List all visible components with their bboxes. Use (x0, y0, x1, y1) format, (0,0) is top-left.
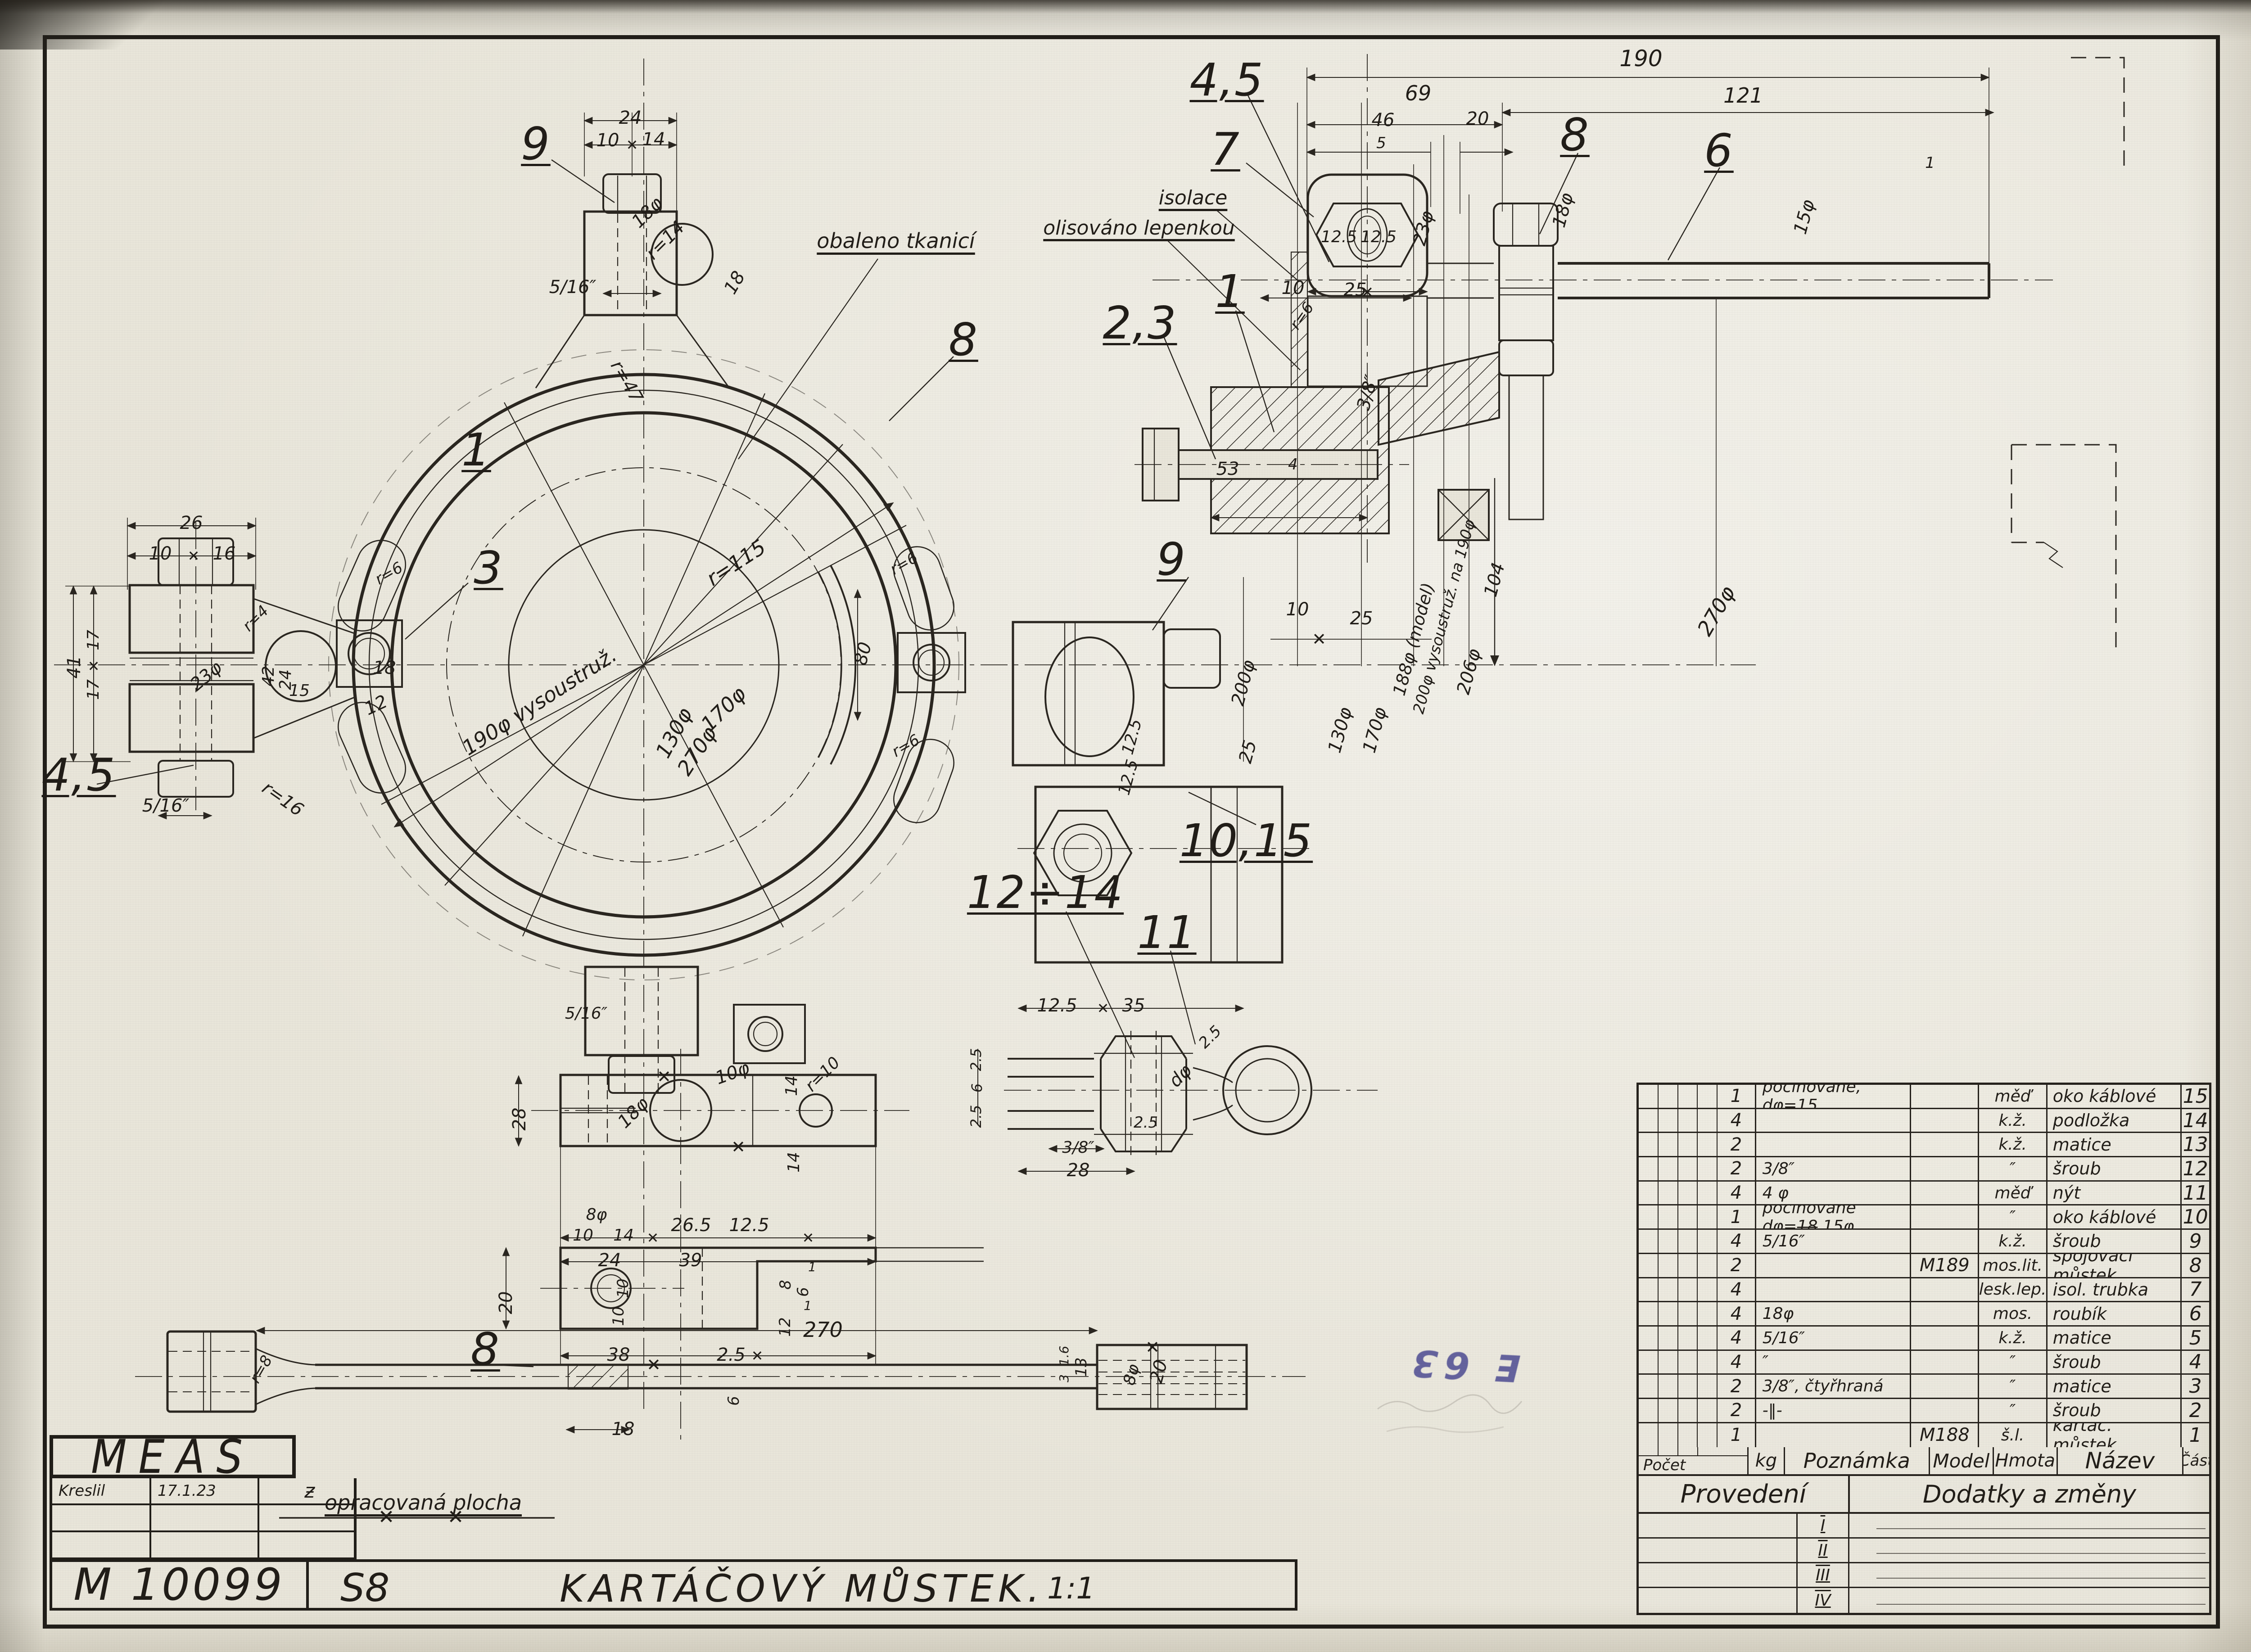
header-roman (1678, 1447, 1698, 1455)
cell-count-iv (1639, 1375, 1659, 1398)
cell-part-number: 6 (2182, 1302, 2209, 1325)
annotation: 1 (1215, 269, 1245, 314)
annotation: ✕ (1097, 1001, 1109, 1016)
cell-material: k.ž. (1979, 1133, 2047, 1156)
cell-model (1911, 1399, 1979, 1422)
cell-count-iv (1639, 1157, 1659, 1180)
cell-name: podložka (2048, 1109, 2182, 1132)
cell-note: ″ (1756, 1351, 1911, 1374)
annotation: r=8 (247, 1353, 275, 1386)
cell-count-iv (1639, 1351, 1659, 1374)
signature-table: Kreslil 17.1.23 ƶ (50, 1478, 357, 1559)
cell-note: 5/16″ (1756, 1230, 1911, 1253)
cell-note (1756, 1109, 1911, 1132)
cell-part-number: 14 (2182, 1109, 2209, 1132)
cell-model (1911, 1230, 1979, 1253)
ink-stamp: E 63 (1399, 1341, 1528, 1390)
annotation: 8 (949, 317, 978, 362)
title-row: M 10099 S8 KARTÁČOVÝ MŮSTEK. 1:1 (50, 1559, 1297, 1611)
annotation: 20 (497, 1291, 515, 1314)
annotation: 17 (86, 679, 102, 700)
parts-table-row: 4 4 φ měď nýt 11 (1639, 1182, 2209, 1206)
annotation: 4,5 (1189, 58, 1264, 103)
cell-count-ii (1678, 1327, 1698, 1350)
annotation: ✕ (1312, 631, 1326, 648)
cell-name: oko káblové (2048, 1085, 2182, 1108)
annotation: 12.5 (1321, 229, 1357, 245)
annotation: 18 (612, 1420, 635, 1438)
cell-count-i (1698, 1157, 1718, 1180)
cell-count: 4 (1718, 1230, 1756, 1253)
cell-count: 4 (1718, 1302, 1756, 1325)
annotation: 14 (784, 1075, 800, 1096)
header-poznamka: Poznámka (1785, 1447, 1930, 1474)
annotation: 7 (1211, 127, 1240, 172)
cell-count-iii (1659, 1278, 1678, 1301)
cell-part-number: 8 (2182, 1254, 2209, 1277)
annotation: 14 (642, 131, 665, 149)
cell-material: ″ (1979, 1205, 2047, 1228)
annotation: ✕ (657, 1068, 671, 1085)
drawn-label: Kreslil (52, 1478, 151, 1503)
cell-model: M188 (1911, 1423, 1979, 1448)
annotation: 6 (1704, 128, 1734, 173)
annotation: r=115 (703, 536, 769, 589)
cell-part-number: 3 (2182, 1375, 2209, 1398)
cell-count-i (1698, 1278, 1718, 1301)
annotation: 28 (1067, 1161, 1090, 1179)
revision-numeral: III (1796, 1563, 1849, 1587)
cell-model (1911, 1278, 1979, 1301)
cell-count-iii (1659, 1182, 1678, 1205)
annotation: 24 (619, 109, 642, 127)
cell-model (1911, 1205, 1979, 1228)
cell-note: 4 φ (1756, 1182, 1911, 1205)
annotation: obaleno tkanicí (817, 230, 975, 251)
header-cast: Část (2183, 1447, 2209, 1474)
cell-count-i (1698, 1085, 1718, 1108)
annotation: 6 (726, 1396, 741, 1406)
annotation: 23φ (187, 658, 226, 694)
annotation: 190 (1619, 47, 1662, 70)
annotation: 28 (511, 1108, 529, 1131)
annotation: 35 (1122, 997, 1145, 1015)
drawn-date: 17.1.23 (151, 1478, 259, 1503)
cell-material: lesk.lep. (1979, 1278, 2047, 1301)
cell-count-ii (1678, 1375, 1698, 1398)
annotation: 10 (597, 131, 619, 149)
header-hmota: Hmota (1994, 1447, 2058, 1474)
cell-count: 4 (1718, 1327, 1756, 1350)
revision-line (1876, 1588, 2206, 1605)
cell-part-number: 7 (2182, 1278, 2209, 1301)
annotation: 5/16″ (142, 797, 190, 815)
cell-count-iv (1639, 1205, 1659, 1228)
cell-count-iv (1639, 1182, 1659, 1205)
cell-count: 4 (1718, 1278, 1756, 1301)
annotation: 12.5 (729, 1216, 769, 1234)
cell-note: 5/16″ (1756, 1327, 1911, 1350)
annotation: 8φ (1121, 1363, 1143, 1387)
revision-empty-cell (1639, 1563, 1796, 1587)
annotation: ✕ (1145, 1339, 1160, 1356)
cell-count-iii (1659, 1109, 1678, 1132)
parts-table-row: 2 M189 mos.lit. spojovací můstek 8 (1639, 1254, 2209, 1278)
annotation: 12 (362, 692, 390, 718)
annotation: 46 (1372, 111, 1395, 129)
annotation: 39 (679, 1251, 702, 1269)
annotation: ✕ (188, 549, 200, 563)
cell-name: roubík (2048, 1302, 2182, 1325)
annotation: 206φ (1454, 647, 1483, 696)
cell-model: M189 (1911, 1254, 1979, 1277)
annotation: 5/16″ (565, 1006, 607, 1022)
annotation: 25 (1236, 738, 1260, 765)
annotation: r=4 (240, 603, 271, 634)
cell-count-i (1698, 1205, 1718, 1228)
cell-model (1911, 1302, 1979, 1325)
cell-count-iii (1659, 1399, 1678, 1422)
empty-cell (259, 1532, 354, 1557)
revision-line (1876, 1539, 2206, 1554)
cell-count-i (1698, 1423, 1718, 1448)
cell-count-i (1698, 1399, 1718, 1422)
annotation: 10 (1282, 279, 1305, 297)
cell-count-iii (1659, 1133, 1678, 1156)
drawing-scale: 1:1 (1047, 1571, 1095, 1606)
cell-material: měď (1979, 1085, 2047, 1108)
cell-name: matice (2048, 1133, 2182, 1156)
cell-part-number: 5 (2182, 1327, 2209, 1350)
parts-table-row: 1 pocínované, dφ=15 měď oko káblové 15 (1639, 1085, 2209, 1109)
cell-name: isol. trubka (2048, 1278, 2182, 1301)
cell-material: měď (1979, 1182, 2047, 1205)
annotation: 270φ (1694, 582, 1739, 639)
revision-line (1876, 1514, 2206, 1529)
annotation: 12.5 (1037, 997, 1077, 1015)
annotation: dφ (1166, 1061, 1195, 1091)
cell-material: š.l. (1979, 1423, 2047, 1448)
annotation: 20 (1466, 110, 1489, 128)
cell-name: matice (2048, 1327, 2182, 1350)
annotation: ✕ (646, 1356, 661, 1373)
revision-numeral: IV (1796, 1588, 1849, 1613)
cell-count-ii (1678, 1399, 1698, 1422)
annotation: 6 (970, 1083, 984, 1092)
cell-part-number: 1 (2182, 1423, 2209, 1448)
annotation: 3 (474, 546, 503, 591)
cell-name: matice (2048, 1375, 2182, 1398)
annotation: ✕ (447, 1508, 464, 1527)
cell-count-iii (1659, 1230, 1678, 1253)
cell-note: 3/8″, čtyřhraná (1756, 1375, 1911, 1398)
revision-empty-cell (1639, 1514, 1796, 1537)
empty-cell (52, 1505, 151, 1530)
cell-material: k.ž. (1979, 1109, 2047, 1132)
cell-count-i (1698, 1109, 1718, 1132)
annotation: 3 (1058, 1374, 1071, 1382)
annotation: 2.5 (717, 1346, 746, 1364)
annotation: 12.5 (1361, 229, 1397, 245)
cell-count: 1 (1718, 1205, 1756, 1228)
cell-count-iv (1639, 1109, 1659, 1132)
annotation: 1 (1925, 155, 1935, 171)
annotation: ✕ (378, 1508, 395, 1527)
annotation: 41 (65, 656, 83, 679)
cell-count-iv (1639, 1327, 1659, 1350)
annotation: ✕ (802, 1231, 814, 1245)
cell-count-iii (1659, 1302, 1678, 1325)
revision-row: II (1639, 1539, 2209, 1563)
company-logo-box: MEAS (50, 1435, 296, 1478)
annotation: isolace (1159, 188, 1228, 208)
cell-count-i (1698, 1182, 1718, 1205)
annotation: 18φ (1550, 191, 1577, 229)
annotation: 10 (149, 545, 172, 563)
annotation: 13 (1074, 1357, 1089, 1377)
revision-empty-cell (1639, 1539, 1796, 1562)
annotation: ✕ (731, 1138, 746, 1155)
cell-count-ii (1678, 1278, 1698, 1301)
cell-name: oko káblové (2048, 1205, 2182, 1228)
annotation: 9 (1157, 537, 1186, 582)
cell-count-iv (1639, 1423, 1659, 1448)
sheet-code: S8 (340, 1566, 389, 1611)
parts-table-row: 4 lesk.lep. isol. trubka 7 (1639, 1278, 2209, 1303)
cell-note (1756, 1254, 1911, 1277)
cell-count-ii (1678, 1205, 1698, 1228)
annotation: 1 (461, 428, 491, 473)
cell-count-iii (1659, 1351, 1678, 1374)
parts-table-row: 4 5/16″ k.ž. šroub 9 (1639, 1230, 2209, 1254)
cell-note (1756, 1423, 1911, 1448)
annotation: 42 (261, 666, 277, 686)
empty-cell (151, 1532, 259, 1557)
cell-name: šroub (2048, 1399, 2182, 1422)
cell-note: pocínované dφ=1̶8̶ 15φ (1756, 1205, 1911, 1228)
annotation: 9 (521, 122, 551, 167)
annotation: 14 (786, 1152, 802, 1173)
cell-note: 3/8″ (1756, 1157, 1911, 1180)
parts-table-row: 4 ″ ″ šroub 4 (1639, 1351, 2209, 1375)
annotation: 26 (180, 514, 203, 532)
cell-model (1911, 1085, 1979, 1108)
revision-row: III (1639, 1563, 2209, 1588)
cell-model (1911, 1157, 1979, 1180)
annotation: 2.5 (1134, 1115, 1158, 1130)
annotation: 15φ (1791, 198, 1818, 236)
drawn-signature: ƶ (259, 1478, 354, 1503)
cell-count-iv (1639, 1302, 1659, 1325)
annotation: 10 (573, 1228, 593, 1244)
parts-table-row: 2 k.ž. matice 13 (1639, 1133, 2209, 1157)
annotation: r=6 (1288, 300, 1317, 332)
annotation: 12÷14 (967, 870, 1124, 915)
cell-name: šroub (2048, 1230, 2182, 1253)
annotation: 8 (778, 1280, 793, 1290)
cell-model (1911, 1133, 1979, 1156)
annotation: olisováno lepenkou (1043, 218, 1234, 238)
parts-table-row: 4 k.ž. podložka 14 (1639, 1109, 2209, 1133)
cell-count-i (1698, 1133, 1718, 1156)
revision-numeral: I (1796, 1514, 1849, 1537)
annotation: 5 (1376, 135, 1386, 151)
annotation: 18φ (615, 1094, 652, 1132)
annotation: 38 (607, 1346, 630, 1364)
cell-count-i (1698, 1254, 1718, 1277)
cell-count-ii (1678, 1254, 1698, 1277)
header-pocet: Počet (1639, 1456, 1747, 1474)
cell-count-ii (1678, 1423, 1698, 1448)
annotation: r=10 (803, 1054, 843, 1095)
annotation: 25 (1350, 609, 1373, 627)
cell-material: ″ (1979, 1157, 2047, 1180)
cell-count-iii (1659, 1375, 1678, 1398)
annotation: r=6 (890, 732, 922, 759)
cell-count-i (1698, 1327, 1718, 1350)
cell-count-iii (1659, 1327, 1678, 1350)
parts-table: 1 pocínované, dφ=15 měď oko káblové 15 4… (1636, 1083, 2211, 1615)
cell-count-iv (1639, 1133, 1659, 1156)
parts-table-row: 1 pocínované dφ=1̶8̶ 15φ ″ oko káblové 1… (1639, 1205, 2209, 1230)
empty-cell (52, 1532, 151, 1557)
annotation: 8φ (586, 1207, 607, 1223)
parts-table-row: 4 5/16″ k.ž. matice 5 (1639, 1327, 2209, 1351)
cell-part-number: 15 (2182, 1085, 2209, 1108)
annotation: 10 (611, 1306, 626, 1326)
cell-count: 2 (1718, 1133, 1756, 1156)
cell-material: k.ž. (1979, 1230, 2047, 1253)
cell-count-iv (1639, 1085, 1659, 1108)
annotation: 130φ (1325, 705, 1355, 755)
cell-count: 4 (1718, 1351, 1756, 1374)
blueprint-page: 98134,54,57862,31910,1512÷14118obaleno t… (0, 0, 2251, 1652)
cell-count: 2 (1718, 1375, 1756, 1398)
annotation: 2.5 (1196, 1023, 1224, 1051)
cell-count-iv (1639, 1254, 1659, 1277)
cell-part-number: 10 (2182, 1205, 2209, 1228)
cell-material: mos. (1979, 1302, 2047, 1325)
cell-note (1756, 1133, 1911, 1156)
revision-empty-cell (1639, 1588, 1796, 1613)
cell-material: mos.lit. (1979, 1254, 2047, 1277)
revision-row: IV (1639, 1588, 2209, 1613)
annotation: 4 (1288, 457, 1298, 472)
cell-count-ii (1678, 1133, 1698, 1156)
cell-count-iii (1659, 1085, 1678, 1108)
cell-count: 4 (1718, 1182, 1756, 1205)
cell-material: k.ž. (1979, 1327, 2047, 1350)
annotation: 80 (851, 640, 875, 667)
cell-count-ii (1678, 1085, 1698, 1108)
cell-note: -‖- (1756, 1399, 1911, 1422)
cell-count-ii (1678, 1157, 1698, 1180)
cell-count: 2 (1718, 1157, 1756, 1180)
annotation: ✕ (1361, 285, 1374, 300)
annotation: r=16 (259, 779, 307, 820)
cell-model (1911, 1109, 1979, 1132)
annotation: 6 (796, 1287, 811, 1297)
header-roman (1659, 1447, 1678, 1455)
annotation: r=6 (888, 550, 921, 577)
drawing-number: M 10099 (52, 1562, 309, 1608)
annotation: 1 (804, 1300, 812, 1312)
revision-numeral: II (1796, 1539, 1849, 1562)
cell-count: 2 (1718, 1254, 1756, 1277)
annotation: r=6 (373, 560, 406, 587)
annotation: 14 (613, 1228, 634, 1244)
cell-material: ″ (1979, 1375, 2047, 1398)
cell-count-ii (1678, 1230, 1698, 1253)
annotation: 200φ (1229, 658, 1258, 708)
annotation: 10φ (713, 1059, 752, 1088)
annotation: 20 (1147, 1358, 1171, 1385)
annotation: 1 (808, 1261, 816, 1273)
cell-material: ″ (1979, 1351, 2047, 1374)
annotation: ✕ (751, 1349, 764, 1363)
cell-count-ii (1678, 1351, 1698, 1374)
cell-count-iv (1639, 1278, 1659, 1301)
cell-model (1911, 1327, 1979, 1350)
header-roman (1698, 1447, 1718, 1455)
provedeni-label: Provedení (1639, 1476, 1850, 1512)
empty-cell (259, 1505, 354, 1530)
cell-model (1911, 1375, 1979, 1398)
cell-count-iii (1659, 1157, 1678, 1180)
cell-name: šroub (2048, 1351, 2182, 1374)
annotation: 16 (213, 545, 236, 563)
annotation: r=47 (607, 357, 646, 406)
header-model: Model (1930, 1447, 1994, 1474)
cell-part-number: 13 (2182, 1133, 2209, 1156)
annotation: 12.5 (1120, 718, 1145, 757)
parts-table-row: 2 3/8″ ″ šroub 12 (1639, 1157, 2209, 1182)
annotation: 4,5 (41, 753, 116, 798)
cell-name: spojovací můstek (2048, 1254, 2182, 1277)
annotation: 2.5 (969, 1048, 983, 1071)
annotation: 2,3 (1103, 301, 1177, 346)
company-name: MEAS (91, 1430, 254, 1484)
annotation: 8 (470, 1327, 500, 1372)
cell-name: nýt (2048, 1182, 2182, 1205)
annotation: 8 (1560, 113, 1590, 158)
annotation: 104 (1482, 561, 1508, 599)
annotation: 3/8″ (1354, 373, 1381, 412)
annotation: 17 (86, 630, 102, 650)
annotation: 26.5 (671, 1216, 711, 1234)
parts-table-row: 1 M188 š.l. kartáč. můstek 1 (1639, 1423, 2209, 1448)
annotation: ✕ (88, 659, 100, 673)
drawing-title: KARTÁČOVÝ MŮSTEK. (560, 1566, 1044, 1611)
cell-count-iii (1659, 1205, 1678, 1228)
annotation: 2.5 (969, 1105, 983, 1128)
annotation: 10,15 (1180, 818, 1313, 863)
cell-count-i (1698, 1351, 1718, 1374)
annotation: 15 (289, 683, 310, 699)
revision-line (1876, 1563, 2206, 1579)
cell-material: ″ (1979, 1399, 2047, 1422)
cell-count-iv (1639, 1399, 1659, 1422)
cell-count-i (1698, 1375, 1718, 1398)
annotation: 5/16″ (549, 278, 597, 296)
cell-count-ii (1678, 1302, 1698, 1325)
annotation: 69 (1405, 83, 1432, 104)
cell-note (1756, 1278, 1911, 1301)
cell-count: 2 (1718, 1399, 1756, 1422)
annotation: 18 (721, 268, 748, 297)
cell-count-i (1698, 1302, 1718, 1325)
cell-count-ii (1678, 1109, 1698, 1132)
